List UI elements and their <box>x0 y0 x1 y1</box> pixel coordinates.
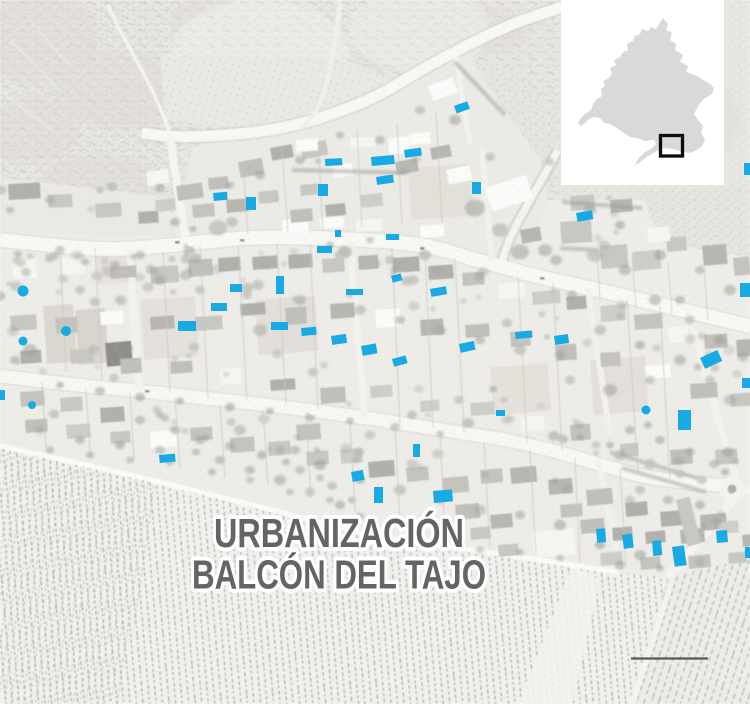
svg-text:URBANIZACIÓN: URBANIZACIÓN <box>214 510 464 556</box>
svg-text:BALCÓN DEL TAJO: BALCÓN DEL TAJO <box>192 552 486 598</box>
